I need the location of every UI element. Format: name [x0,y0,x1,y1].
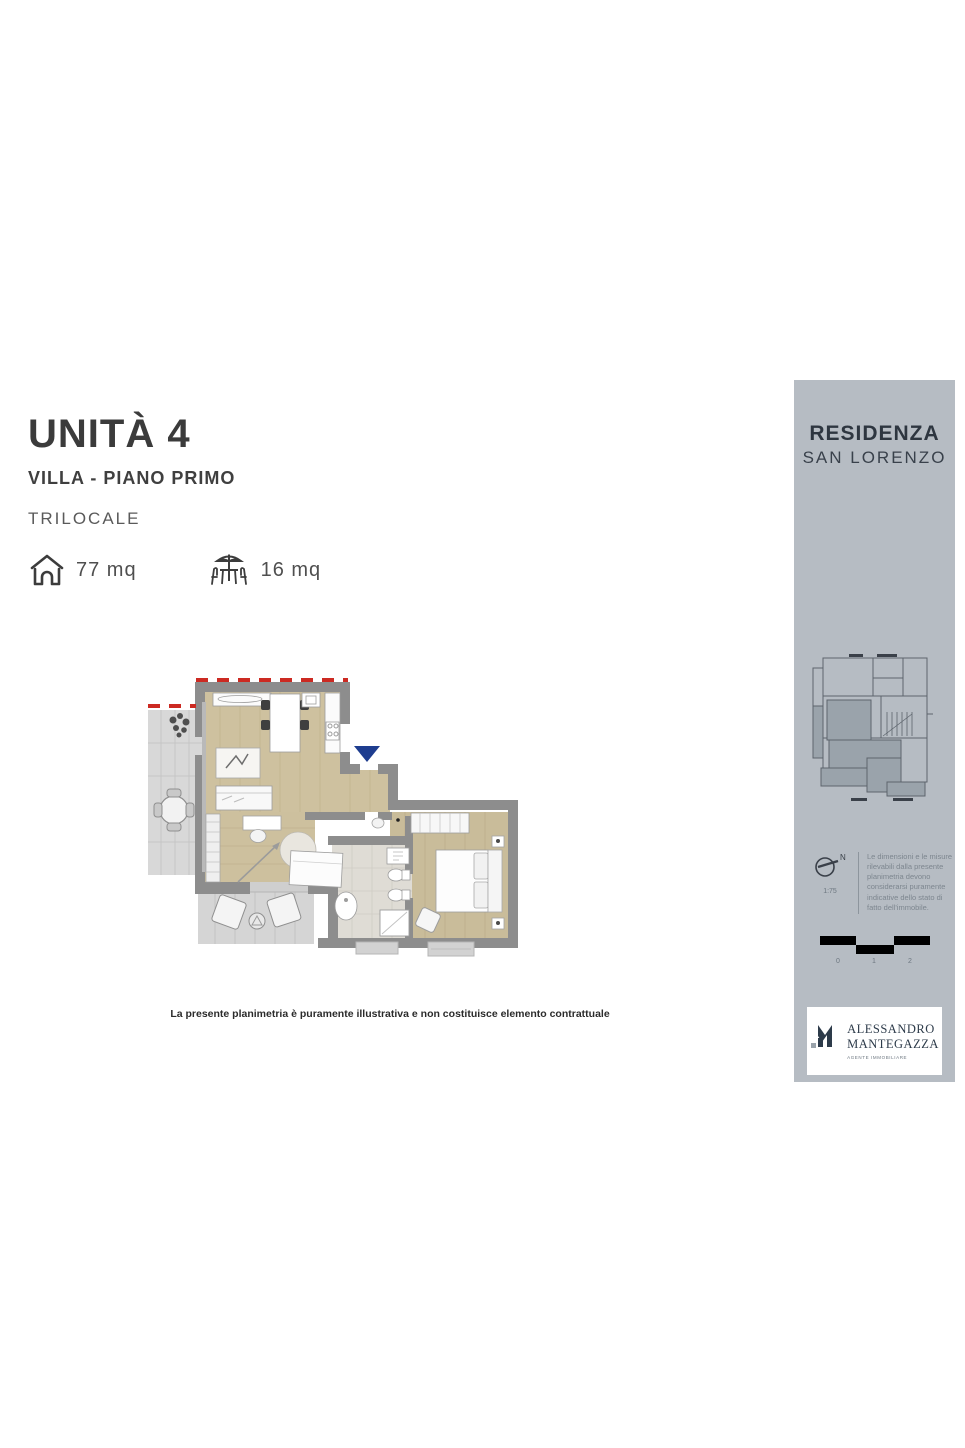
divider [858,852,859,914]
scale-label-0: 0 [820,958,856,965]
agency-logo: ALESSANDRO MANTEGAZZA AGENTE IMMOBILIARE [807,1007,942,1075]
agency-logo-mark-icon [810,1023,840,1060]
terrace [148,710,202,875]
plan-disclaimer: La presente planimetria è puramente illu… [150,1008,630,1020]
house-icon [28,552,66,588]
residence-title: RESIDENZA [794,422,955,446]
interior-area-value: 77 mq [76,559,137,582]
scale-bar [820,932,930,958]
terrace-umbrella-icon [207,551,251,589]
page: UNITÀ 4 VILLA - PIANO PRIMO TRILOCALE 77… [0,0,965,1448]
header: UNITÀ 4 VILLA - PIANO PRIMO TRILOCALE 77… [28,414,321,589]
agency-tagline: AGENTE IMMOBILIARE [847,1054,939,1060]
scale-bar-labels: 0 1 2 [820,958,930,965]
sidebar: RESIDENZA SAN LORENZO [794,380,955,1082]
agency-name-line1: ALESSANDRO [847,1022,939,1036]
interior-area-item: 77 mq [28,552,137,588]
floor-plan [140,660,550,965]
residence-block: RESIDENZA SAN LORENZO [794,422,955,468]
unit-type: TRILOCALE [28,509,321,529]
scale-ratio: 1:75 [808,888,852,895]
scale-label-2: 2 [892,958,928,965]
area-row: 77 mq 16 mq [28,551,321,589]
north-note-row: N 1:75 Le dimensioni e le misure rilevab… [808,852,955,914]
scale-label-1: 1 [856,958,892,965]
exterior-area-value: 16 mq [261,559,322,582]
residence-subtitle: SAN LORENZO [794,448,955,468]
agency-name-line2: MANTEGAZZA [847,1037,939,1051]
key-plan [811,648,939,811]
north-label: N [840,853,846,862]
exterior-area-item: 16 mq [207,551,322,589]
page-title: UNITÀ 4 [28,414,321,454]
sidebar-note: Le dimensioni e le misure rilevabili dal… [867,852,955,913]
north-arrow: N 1:75 [808,852,852,895]
agency-logo-text: ALESSANDRO MANTEGAZZA AGENTE IMMOBILIARE [847,1022,939,1060]
entrance-marker-icon [354,746,380,762]
unit-subtitle: VILLA - PIANO PRIMO [28,468,321,489]
